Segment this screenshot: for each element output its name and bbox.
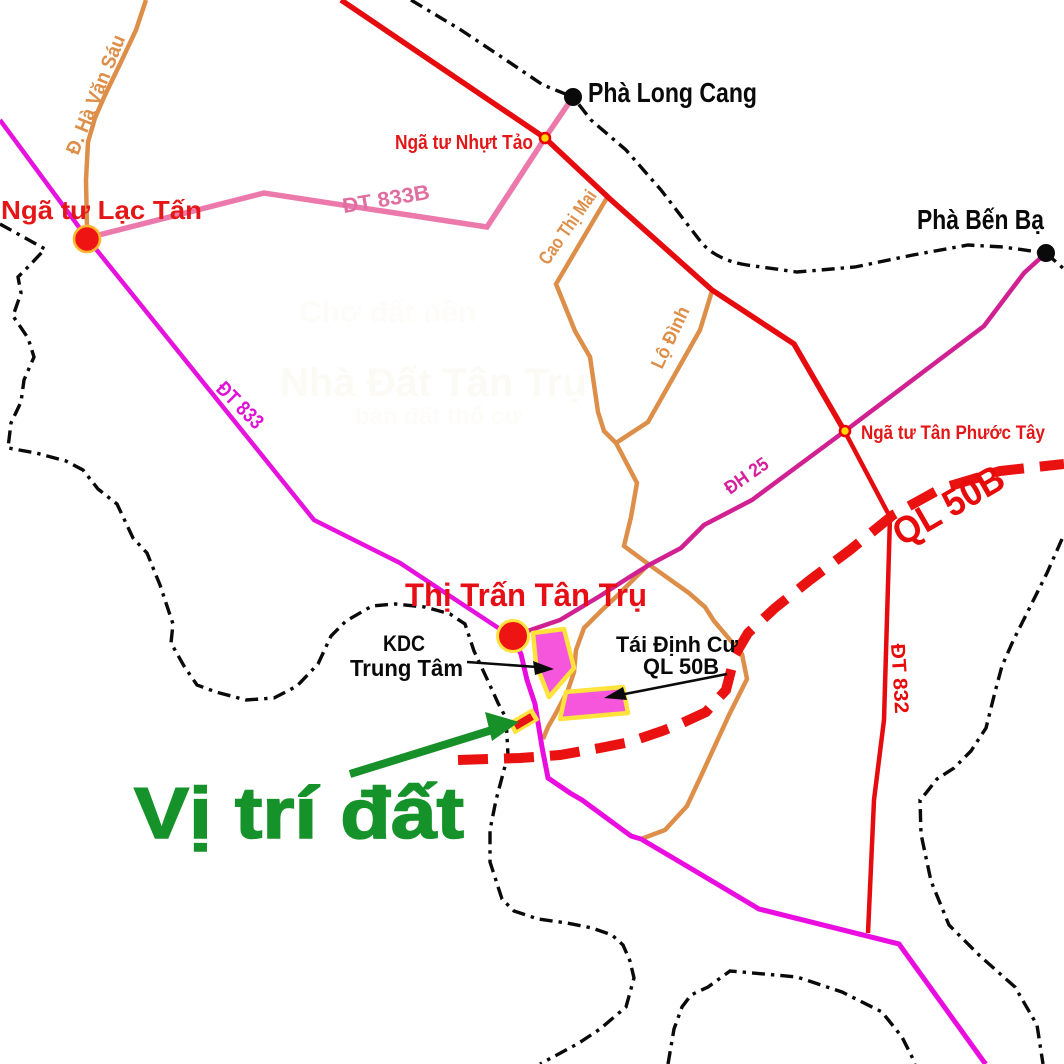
svg-text:Trung Tâm: Trung Tâm (350, 655, 463, 681)
svg-text:Ngã tư Lạc Tấn: Ngã tư Lạc Tấn (1, 195, 202, 225)
svg-text:Phà Bến Bạ: Phà Bến Bạ (917, 204, 1044, 235)
svg-text:QL 50B: QL 50B (643, 654, 719, 679)
svg-text:Nhà Đất Tân Trụ: Nhà Đất Tân Trụ (280, 361, 587, 405)
svg-text:Phà Long Cang: Phà Long Cang (588, 77, 757, 108)
svg-text:Vị trí đất: Vị trí đất (134, 774, 464, 854)
svg-text:Ngã tư Nhựt Tảo: Ngã tư Nhựt Tảo (395, 132, 533, 154)
svg-text:bán đất thổ cư: bán đất thổ cư (355, 403, 522, 430)
svg-text:ĐT 832: ĐT 832 (886, 643, 912, 714)
svg-text:Ngã tư Tân Phước Tây: Ngã tư Tân Phước Tây (861, 423, 1045, 444)
svg-text:KDC: KDC (383, 631, 425, 656)
svg-text:Chợ đất nền: Chợ đất nền (300, 296, 476, 329)
svg-text:Thị Trấn Tân Trụ: Thị Trấn Tân Trụ (405, 577, 647, 613)
